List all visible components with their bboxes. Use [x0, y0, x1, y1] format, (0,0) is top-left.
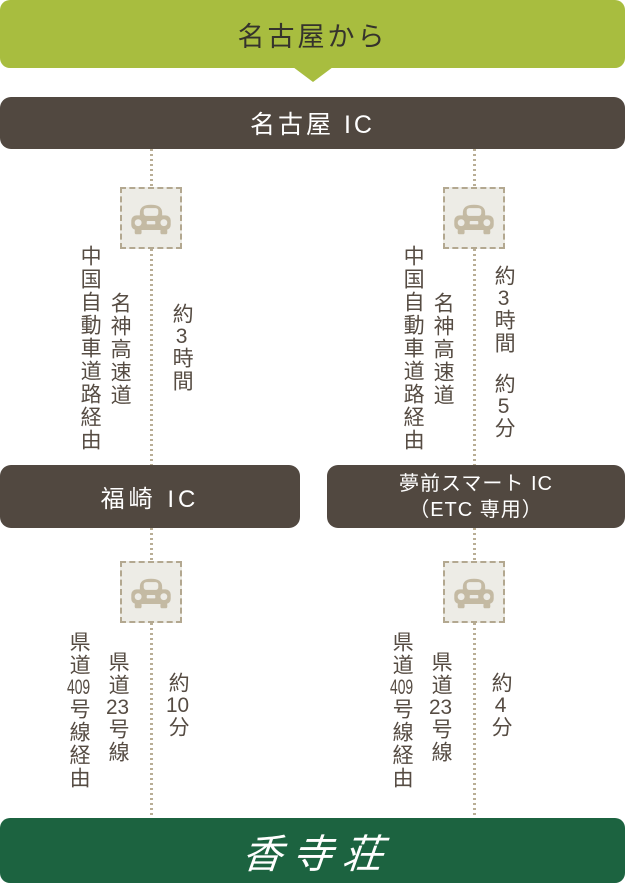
waypoint-label-line2: （ETC 専用） — [409, 497, 543, 523]
left-leg2-duration: 約10分 — [165, 672, 189, 739]
car-icon — [450, 568, 498, 616]
right-leg1-via-road: 名神高速道 — [430, 292, 454, 407]
right-leg2-via-detail: 県道409号線経由 — [389, 631, 413, 790]
left-leg1-via-detail: 中国自動車道路経由 — [77, 245, 101, 452]
right-leg2-via-road: 県道23号線 — [428, 651, 452, 764]
start-ic-bar: 名古屋 IC — [0, 97, 625, 149]
right-leg1-via-detail: 中国自動車道路経由 — [400, 245, 424, 452]
access-route-diagram: 名古屋から 名古屋 IC — [0, 0, 625, 894]
car-badge-right-leg2 — [443, 561, 505, 623]
left-leg1-duration: 約3時間 — [169, 303, 193, 393]
start-ic-label: 名古屋 IC — [250, 105, 375, 141]
down-arrow-icon — [293, 67, 333, 82]
waypoint-bar-fukusaki-ic: 福崎 IC — [0, 465, 300, 528]
right-leg2-duration: 約4分 — [488, 672, 512, 739]
car-badge-right-leg1 — [443, 187, 505, 249]
left-leg1-via-road: 名神高速道 — [107, 292, 131, 407]
car-icon — [450, 194, 498, 242]
waypoint-bar-yumesaki-smart-ic: 夢前スマート IC （ETC 専用） — [327, 465, 625, 528]
waypoint-label: 福崎 IC — [101, 479, 200, 514]
car-badge-left-leg2 — [120, 561, 182, 623]
left-leg2-via-road: 県道23号線 — [105, 651, 129, 764]
right-leg1-duration: 約3時間約5分 — [491, 265, 515, 440]
page-title: 名古屋から — [238, 15, 388, 54]
car-icon — [127, 194, 175, 242]
left-leg2-via-detail: 県道409号線経由 — [66, 631, 90, 790]
destination-bar: 香寺荘 — [0, 818, 625, 883]
car-badge-left-leg1 — [120, 187, 182, 249]
car-icon — [127, 568, 175, 616]
header-banner: 名古屋から — [0, 0, 625, 68]
waypoint-label-line1: 夢前スマート IC — [399, 471, 553, 497]
site-logo: 香寺荘 — [229, 822, 395, 880]
